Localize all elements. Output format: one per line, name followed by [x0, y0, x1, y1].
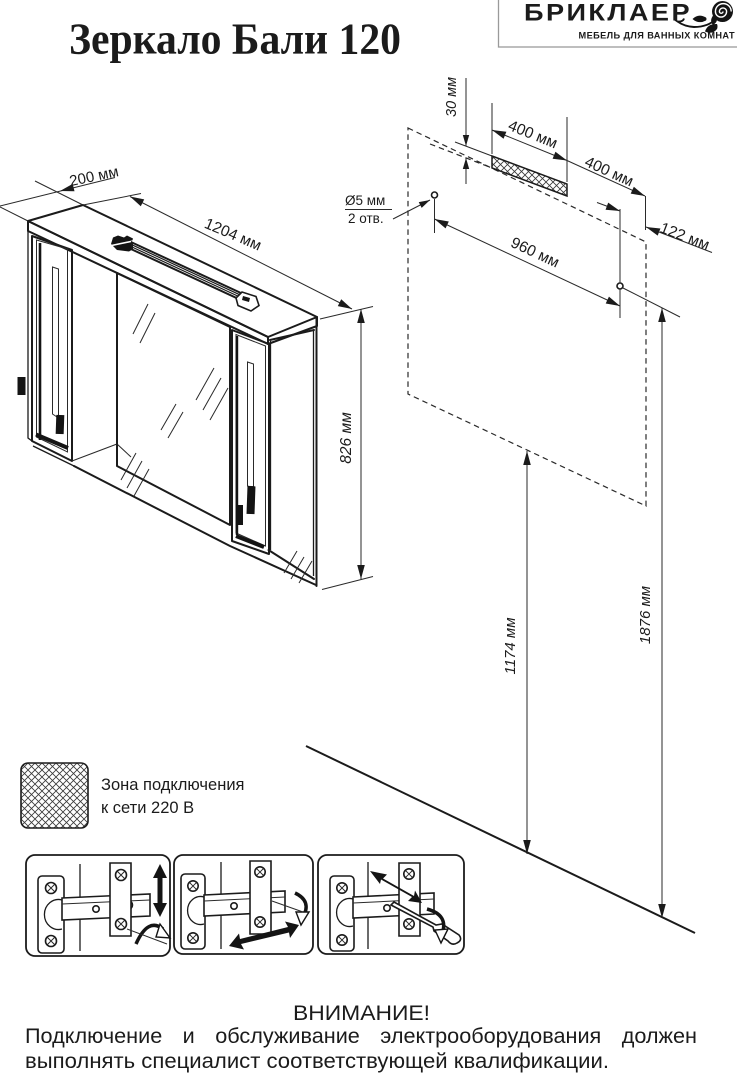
- svg-text:Ø5 мм: Ø5 мм: [345, 193, 385, 208]
- svg-text:БРИКЛАЕР: БРИКЛАЕР: [524, 0, 692, 27]
- svg-text:ВНИМАНИЕ!: ВНИМАНИЕ!: [293, 1002, 430, 1025]
- svg-text:30 мм: 30 мм: [444, 77, 460, 117]
- svg-text:826 мм: 826 мм: [338, 412, 355, 464]
- svg-text:выполнять специалист соответст: выполнять специалист соответствующей ква…: [25, 1050, 609, 1073]
- svg-text:Зона подключения: Зона подключения: [101, 776, 244, 794]
- svg-text:1174 мм: 1174 мм: [502, 618, 519, 675]
- svg-text:Зеркало Бали 120: Зеркало Бали 120: [69, 15, 401, 64]
- svg-text:1876 мм: 1876 мм: [637, 586, 654, 644]
- svg-text:Подключение и обслуживание эле: Подключение и обслуживание электрооборуд…: [25, 1025, 697, 1048]
- svg-text:к сети 220 В: к сети 220 В: [101, 799, 194, 817]
- svg-text:2 отв.: 2 отв.: [348, 211, 384, 226]
